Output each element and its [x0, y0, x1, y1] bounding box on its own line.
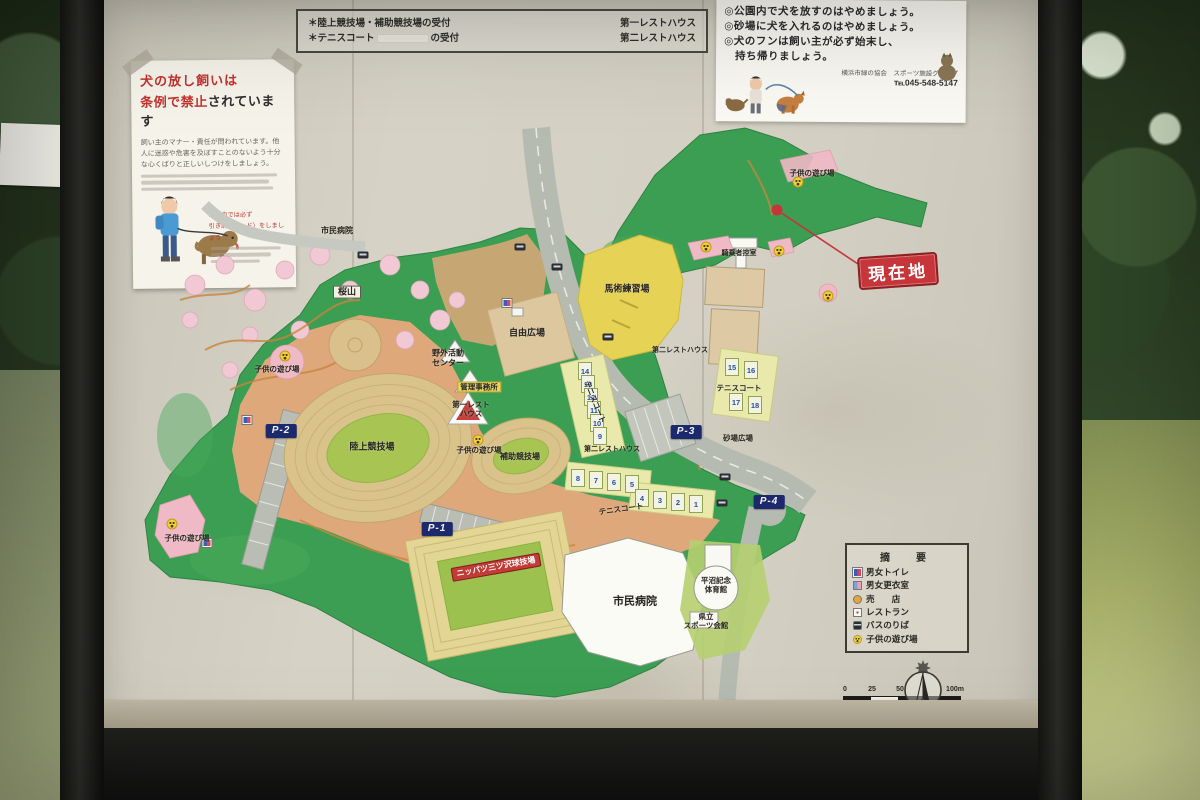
map-tennis-court-number: 18	[748, 396, 762, 414]
playground-icon	[280, 351, 291, 362]
hill-mound	[329, 319, 381, 371]
frame-post-left	[60, 0, 104, 800]
map-label: 第一レスト ハウス	[452, 400, 490, 418]
map-label: 市民病院	[321, 226, 353, 236]
map-label: テニスコート	[717, 384, 762, 393]
map-label: 野外活動 センター	[432, 348, 464, 367]
map-label: 第二レストハウス	[584, 446, 640, 454]
legend-items: 男女トイレ男女更衣室売 店レストランバスのりば子供の遊び場	[853, 566, 961, 646]
map-tennis-court-number: 1	[689, 495, 703, 513]
map-tennis-court-number: 3	[653, 491, 667, 509]
map-label: 補助競技場	[500, 452, 540, 462]
map-label: 平沼記念 体育館	[701, 576, 731, 594]
playground-icon	[167, 519, 178, 530]
playground-icon	[701, 242, 712, 253]
map-tennis-court-number: 2	[671, 493, 685, 511]
legend-label: 売 店	[866, 593, 900, 606]
map-tennis-court-number: 8	[571, 469, 585, 487]
bus-stop-icon	[603, 334, 614, 341]
frame-post-right	[1038, 0, 1082, 800]
map-label: 子供の遊び場	[457, 446, 502, 455]
legend-label: レストラン	[866, 606, 909, 619]
changing-room-icon	[853, 581, 862, 590]
map-label: 桜山	[333, 286, 361, 299]
map-label: P-2	[266, 424, 297, 438]
legend-label: バスのりば	[866, 619, 909, 632]
legend-label: 男女更衣室	[866, 579, 909, 592]
legend-label: 子供の遊び場	[866, 633, 918, 646]
map-tennis-court-number: 17	[729, 393, 743, 411]
playground-icon	[853, 635, 862, 644]
legend-row: レストラン	[853, 606, 961, 619]
legend-row: 男女更衣室	[853, 579, 961, 592]
playground-icon	[823, 291, 834, 302]
map-label: 自由広場	[509, 328, 545, 339]
map-label: 騎乗者控室	[722, 250, 757, 258]
bus-stop-icon	[515, 244, 526, 251]
map-tennis-court-number: 9	[593, 427, 607, 445]
map-label: P-3	[671, 425, 702, 439]
shop-icon	[853, 595, 862, 604]
toilet-icon	[243, 416, 252, 424]
scale-tick: 25	[868, 686, 876, 693]
map-label: 子供の遊び場	[790, 169, 835, 178]
map-tennis-court-number: 16	[744, 361, 758, 379]
map-tennis-court-number: 15	[725, 358, 739, 376]
toilet-icon	[503, 299, 512, 307]
park-map: 現在地 摘 要 男女トイレ男女更衣室売 店レストランバスのりば子供の遊び場 02…	[0, 0, 1200, 800]
legend-label: 男女トイレ	[866, 566, 909, 579]
current-location-badge: 現在地	[857, 252, 939, 291]
playground-icon	[473, 435, 484, 446]
park-map-drawing	[0, 0, 1200, 800]
bus-stop-icon	[717, 500, 728, 507]
restaurant-icon	[853, 608, 862, 617]
map-label: 子供の遊び場	[165, 534, 210, 543]
legend-title: 摘 要	[853, 549, 961, 564]
legend-row: 売 店	[853, 593, 961, 606]
equestrian-ground	[578, 235, 683, 360]
map-label: 砂場広場	[723, 434, 753, 443]
map-label: 第二レストハウス	[652, 347, 708, 355]
map-label: 子供の遊び場	[255, 365, 300, 374]
map-label: P-1	[422, 522, 453, 536]
legend-row: バスのりば	[853, 619, 961, 632]
map-tennis-court-number: 7	[589, 471, 603, 489]
map-tennis-court-number: 6	[607, 473, 621, 491]
playground-icon	[793, 177, 804, 188]
bus-stop-icon	[358, 252, 369, 259]
map-legend: 摘 要 男女トイレ男女更衣室売 店レストランバスのりば子供の遊び場	[845, 543, 969, 653]
frame-bottom-rail	[102, 700, 1040, 730]
toilet-icon	[853, 568, 862, 577]
legend-row: 男女トイレ	[853, 566, 961, 579]
map-label: 馬術練習場	[604, 284, 649, 295]
bus-stop-icon	[853, 621, 862, 630]
playground-icon	[774, 246, 785, 257]
bus-stop-icon	[720, 474, 731, 481]
map-label: 陸上競技場	[349, 442, 394, 453]
legend-row: 子供の遊び場	[853, 633, 961, 646]
map-label: 県立 スポーツ会館	[684, 612, 729, 630]
scale-tick: 0	[843, 686, 847, 693]
map-label: 管理事務所	[457, 382, 501, 393]
map-label: P-4	[754, 495, 785, 509]
map-label: 市民病院	[613, 595, 657, 608]
frame-bottom-bar	[60, 728, 1082, 800]
photo-of-park-signboard: ＊陸上競技場・補助競技場の受付第一レストハウス＊テニスコートの受付第二レストハウ…	[0, 0, 1200, 800]
bus-stop-icon	[552, 264, 563, 271]
